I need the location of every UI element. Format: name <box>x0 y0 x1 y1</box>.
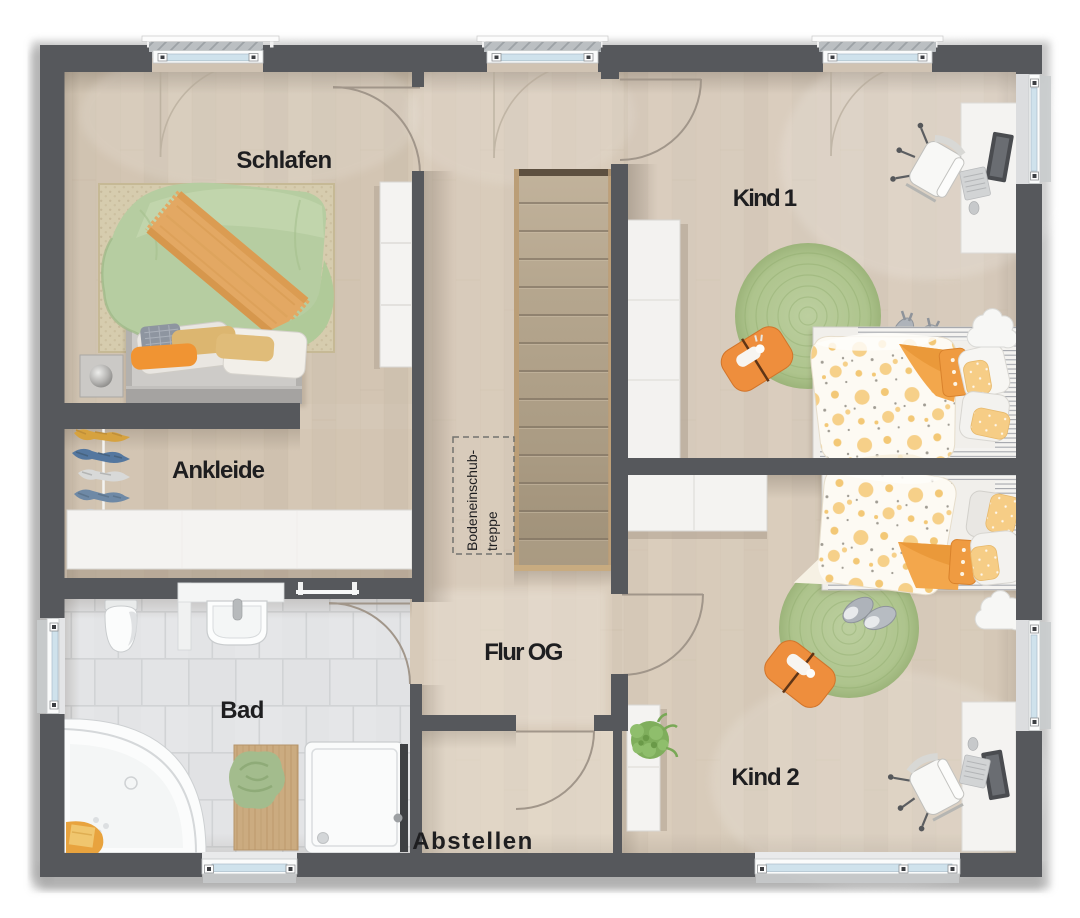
svg-text:Kind 2: Kind 2 <box>731 764 799 791</box>
svg-text:Bad: Bad <box>220 697 264 724</box>
svg-text:Flur OG: Flur OG <box>484 639 562 666</box>
svg-text:Ankleide: Ankleide <box>172 457 265 484</box>
svg-text:treppe: treppe <box>484 511 500 551</box>
svg-text:Bodeneinschub-: Bodeneinschub- <box>464 449 480 551</box>
svg-text:Abstellen: Abstellen <box>412 828 534 855</box>
svg-text:Schlafen: Schlafen <box>236 147 331 174</box>
svg-text:Kind 1: Kind 1 <box>733 185 797 212</box>
